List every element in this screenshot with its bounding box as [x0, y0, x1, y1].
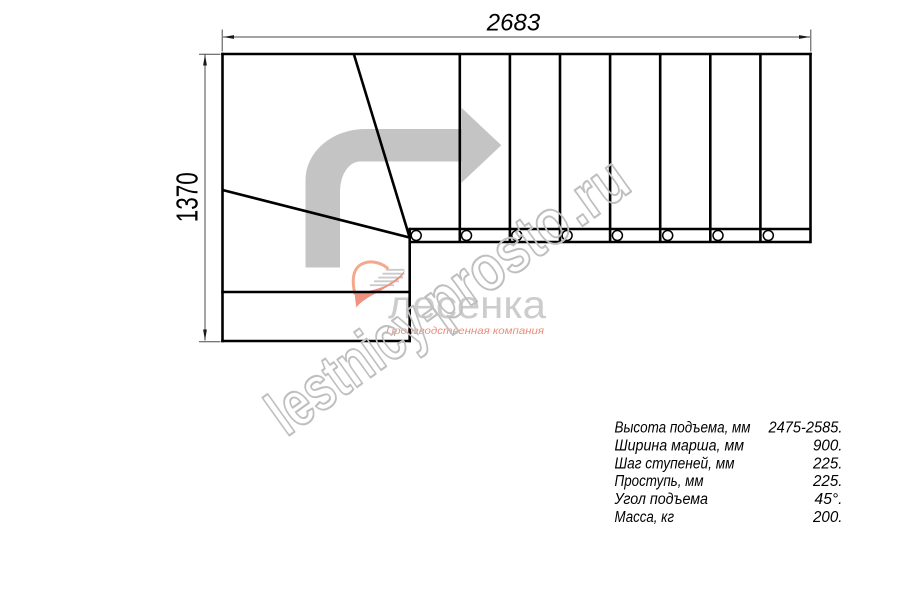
svg-text:Шаг ступеней, мм: Шаг ступеней, мм	[615, 455, 735, 472]
svg-text:900.: 900.	[813, 437, 843, 454]
svg-text:45°.: 45°.	[815, 491, 843, 508]
svg-text:2683: 2683	[486, 10, 541, 37]
svg-text:Угол подъема: Угол подъема	[614, 491, 709, 508]
svg-text:2475-2585.: 2475-2585.	[768, 420, 843, 437]
svg-text:225.: 225.	[812, 473, 842, 490]
svg-text:225.: 225.	[812, 455, 842, 472]
svg-text:Ширина марша, мм: Ширина марша, мм	[615, 437, 745, 454]
svg-text:Высота подъема, мм: Высота подъема, мм	[615, 420, 751, 437]
svg-text:Проступь, мм: Проступь, мм	[615, 473, 704, 490]
svg-text:1370: 1370	[170, 172, 205, 222]
svg-text:Масса, кг: Масса, кг	[615, 509, 675, 526]
svg-text:200.: 200.	[812, 509, 842, 526]
